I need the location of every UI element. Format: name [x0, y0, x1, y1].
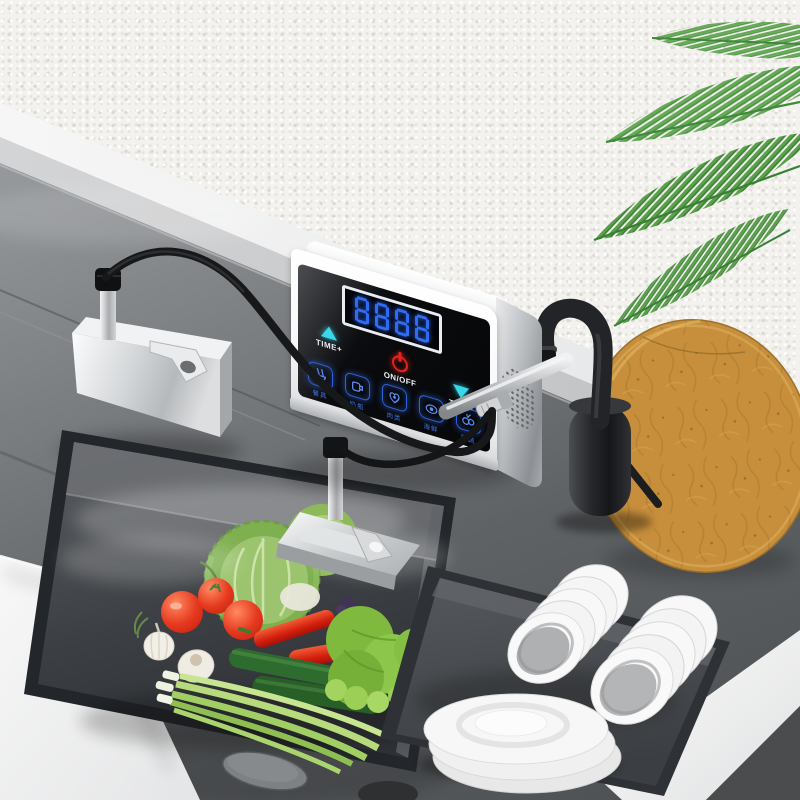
product-photo: TIME+ ON/OFF TIME- 餐具 — [0, 0, 800, 800]
cables-overlay — [0, 0, 800, 800]
power-cable — [106, 252, 492, 453]
